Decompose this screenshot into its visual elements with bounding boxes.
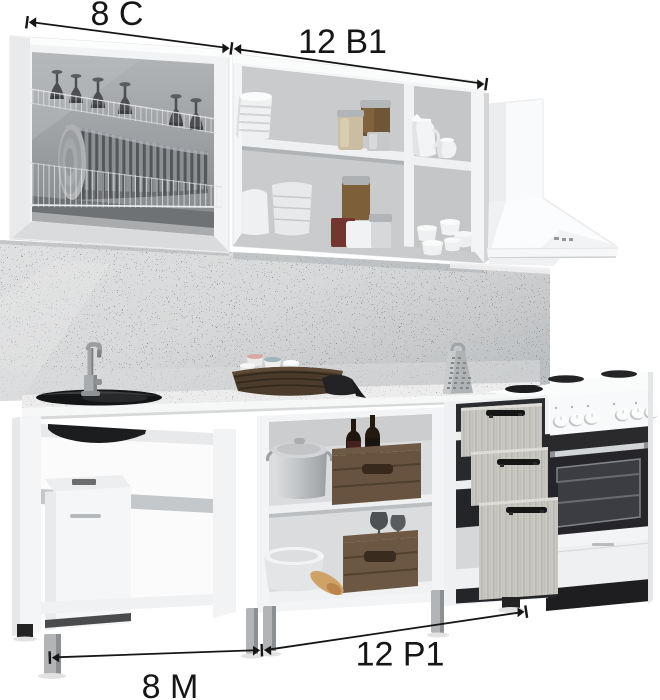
svg-text:8 C: 8 C xyxy=(91,0,144,33)
svg-text:12 B1: 12 B1 xyxy=(298,23,387,61)
svg-text:8 M: 8 M xyxy=(142,668,199,700)
svg-text:12 P1: 12 P1 xyxy=(356,636,445,674)
